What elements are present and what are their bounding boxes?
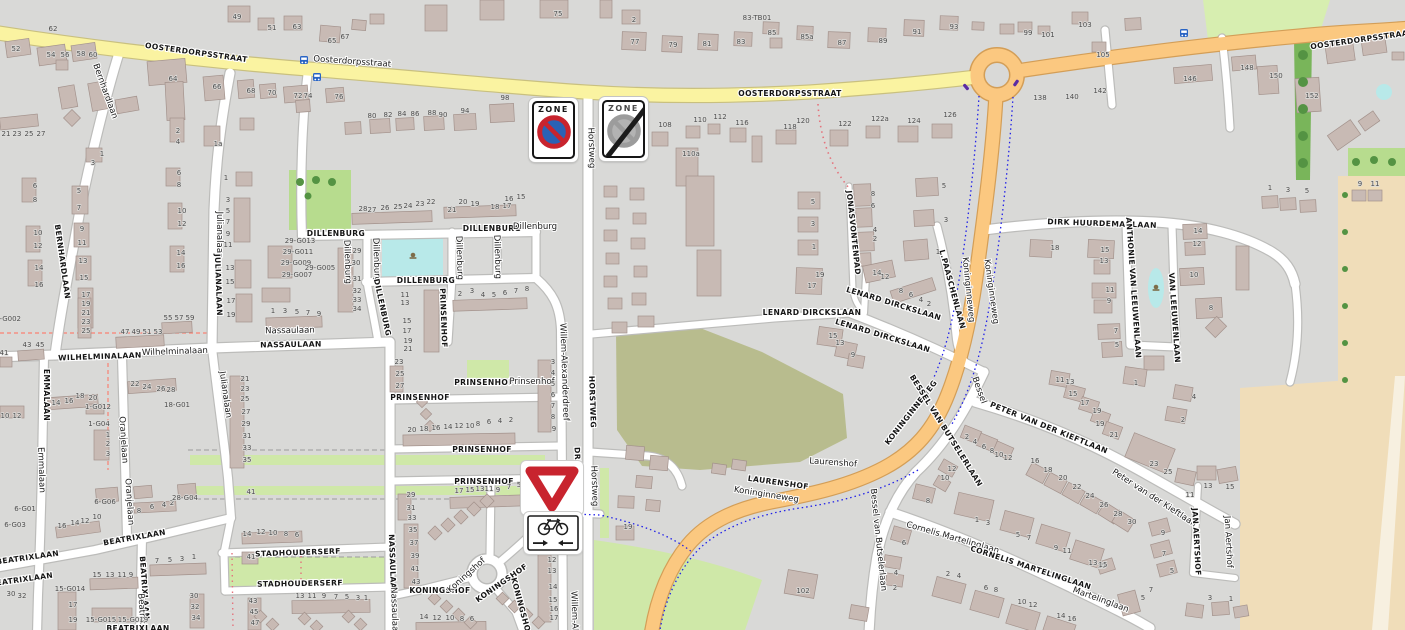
house-number: 3 — [551, 358, 555, 366]
house-number: 4 — [873, 226, 878, 234]
building — [708, 124, 720, 134]
house-number: 7 — [155, 557, 159, 565]
house-number: 9 — [496, 486, 500, 494]
house-number: 1 — [192, 553, 196, 561]
house-number: 19 — [82, 300, 91, 308]
house-number: 6 — [909, 291, 914, 299]
house-number: 89 — [879, 37, 888, 45]
house-number: 41 — [0, 349, 8, 357]
house-number: 5 — [1170, 567, 1174, 575]
house-number: 17 — [69, 601, 78, 609]
building — [1102, 341, 1123, 357]
house-number: 32 — [191, 603, 200, 611]
building — [631, 238, 645, 249]
house-number: 21 — [404, 345, 413, 353]
house-number: 31 — [353, 275, 362, 283]
house-number: 37 — [410, 539, 419, 547]
house-number: 13 — [401, 299, 410, 307]
house-number: 5 — [345, 593, 349, 601]
house-number: 55 — [164, 314, 173, 322]
house-number: 9 — [317, 310, 321, 318]
house-number: 85a — [800, 33, 813, 41]
house-number: 15 — [466, 486, 475, 494]
house-number: 30 — [352, 259, 361, 267]
house-number: 6 — [982, 443, 987, 451]
house-number: 74 — [304, 92, 313, 100]
building — [604, 230, 617, 241]
house-number: 15-G014 — [55, 585, 86, 593]
house-number: 23 — [241, 385, 250, 393]
house-number: 13 — [476, 485, 485, 493]
building — [686, 126, 700, 138]
house-number: 10 — [269, 529, 278, 537]
house-number: 6 — [150, 503, 155, 511]
house-number: 5 — [226, 207, 230, 215]
building — [649, 455, 668, 471]
building — [345, 122, 362, 135]
building — [240, 118, 254, 130]
house-number: 13 — [836, 339, 845, 347]
building — [606, 208, 619, 219]
zone-label: ZONE — [538, 105, 569, 114]
house-number: 27 — [242, 408, 251, 416]
house-number: 13 — [226, 264, 235, 272]
building — [646, 499, 661, 511]
house-number: 5 — [1305, 187, 1309, 195]
house-number: 31 — [243, 432, 252, 440]
building — [618, 496, 634, 509]
house-number: 32 — [18, 592, 27, 600]
house-number: 20 — [89, 394, 98, 402]
house-number: 1 — [812, 243, 816, 251]
building — [134, 485, 153, 499]
house-number: 29 — [407, 491, 416, 499]
house-number: 14 — [1057, 612, 1066, 620]
street-label: Dillenburg — [513, 222, 557, 232]
house-number: 25 — [1164, 468, 1173, 476]
building — [235, 260, 251, 288]
house-number: 1-G002 — [0, 315, 21, 323]
house-number: 8 — [177, 181, 181, 189]
house-number: 13 — [1100, 257, 1109, 265]
building — [932, 124, 952, 138]
house-number: 18-G01 — [164, 401, 190, 409]
building — [266, 618, 279, 630]
house-number: 58 — [77, 50, 86, 58]
house-number: 77 — [631, 38, 640, 46]
house-number: 28 — [1114, 510, 1123, 518]
house-number: 2 — [946, 570, 950, 578]
house-number: 13 — [296, 592, 305, 600]
house-number: 9 — [851, 351, 855, 359]
house-number: 9 — [226, 230, 230, 238]
house-number: 140 — [1065, 93, 1078, 101]
building — [830, 130, 848, 146]
house-number: 122 — [838, 120, 851, 128]
building — [1358, 111, 1380, 131]
house-number: 15 — [80, 274, 89, 282]
building — [538, 360, 551, 432]
house-number: 7 — [551, 402, 555, 410]
building — [420, 408, 431, 419]
house-number: 5 — [77, 187, 81, 195]
building — [1173, 385, 1193, 402]
house-number: 11 — [1106, 286, 1115, 294]
house-number: 116 — [735, 119, 749, 127]
house-number: 70 — [268, 89, 277, 97]
house-number: 6 — [33, 182, 38, 190]
building — [1000, 24, 1014, 34]
house-number: 29-G011 — [283, 248, 313, 256]
house-number: 148 — [1240, 64, 1253, 72]
tree-icon — [305, 193, 312, 200]
house-number: 14 — [243, 530, 252, 538]
house-number: 2 — [927, 300, 931, 308]
house-number: 33 — [353, 296, 362, 304]
house-number: 4 — [551, 369, 556, 377]
house-number: 7 — [1149, 586, 1153, 594]
building — [970, 590, 1004, 617]
house-number: 3 — [1286, 186, 1290, 194]
house-number: 75 — [554, 10, 563, 18]
building — [440, 600, 453, 613]
house-number: 76 — [335, 93, 344, 101]
house-number: 5 — [1016, 531, 1020, 539]
house-number: 24 — [1086, 492, 1095, 500]
roundabout — [977, 55, 1017, 95]
bus-icon — [1180, 29, 1188, 37]
building — [847, 354, 865, 369]
building — [454, 113, 477, 130]
house-number: 122a — [871, 115, 889, 123]
house-number: 7 — [334, 593, 338, 601]
building — [798, 192, 820, 209]
building — [162, 321, 193, 334]
building — [64, 110, 81, 127]
building — [932, 576, 966, 603]
house-number: 30 — [1128, 518, 1137, 526]
house-number: 12 — [81, 517, 90, 525]
bicycle-crossing-sign[interactable] — [524, 512, 582, 554]
house-number: 19 — [69, 616, 78, 624]
house-number: 11 — [1371, 180, 1380, 188]
house-number: 23 — [395, 358, 404, 366]
house-number: 12 — [1004, 454, 1013, 462]
house-number: 21 — [82, 309, 91, 317]
house-number: 4 — [498, 417, 503, 425]
house-number: 8 — [926, 497, 930, 505]
building — [634, 266, 647, 277]
house-number: 11 — [118, 571, 127, 579]
house-number: 11 — [401, 291, 410, 299]
house-number: 29 — [242, 420, 251, 428]
house-number: 15 — [1069, 390, 1078, 398]
building — [731, 459, 746, 471]
house-number: 52 — [12, 45, 21, 53]
house-number: 53 — [154, 328, 163, 336]
house-number: 47 — [251, 619, 260, 627]
house-number: 19 — [624, 523, 633, 531]
building — [638, 316, 654, 327]
building — [1157, 560, 1178, 577]
house-number: 7 — [77, 204, 81, 212]
house-number: 10 — [995, 451, 1004, 459]
building — [1217, 466, 1238, 483]
house-number: 1 — [1268, 184, 1272, 192]
house-number: 14 — [177, 249, 186, 257]
building — [632, 293, 646, 305]
house-number: 68 — [247, 87, 256, 95]
house-number: 4 — [1192, 393, 1197, 401]
building — [1185, 603, 1204, 618]
house-number: 11 — [1056, 376, 1065, 384]
house-number: 12 — [433, 614, 442, 622]
house-number: 2 — [106, 440, 110, 448]
house-number: 1 — [1229, 595, 1233, 603]
house-number: 19 — [471, 200, 480, 208]
house-number: 10 — [34, 229, 43, 237]
house-number: 54 — [47, 51, 56, 59]
parking-zone-sign[interactable]: ZONE — [529, 98, 578, 162]
building — [18, 349, 45, 361]
house-number: 9 — [1107, 297, 1111, 305]
building — [776, 130, 796, 144]
house-number: 23 — [13, 130, 22, 138]
house-number: 2 — [873, 235, 877, 243]
house-number: 3 — [811, 220, 815, 228]
house-number: 8 — [871, 190, 875, 198]
building — [630, 188, 644, 200]
house-number: 21 — [2, 130, 11, 138]
house-number: 32 — [353, 287, 362, 295]
building — [606, 253, 619, 264]
street-label: OOSTERDORPSSTRAAT — [738, 89, 842, 98]
house-number: 45 — [250, 608, 259, 616]
parking-zone-end-sign[interactable]: ZONE — [599, 97, 648, 161]
building — [770, 38, 782, 48]
house-number: 59 — [186, 314, 195, 322]
house-number: 110 — [693, 116, 706, 124]
building — [296, 100, 311, 113]
house-number: 51 — [268, 24, 277, 32]
house-number: 23 — [416, 200, 425, 208]
tree-icon — [1342, 229, 1348, 235]
house-number: 5 — [492, 291, 496, 299]
tree-icon — [1388, 158, 1396, 166]
house-number: 81 — [703, 40, 712, 48]
house-number: 3 — [986, 519, 990, 527]
building — [1352, 190, 1366, 201]
house-number: 25 — [25, 130, 34, 138]
house-number: 16 — [1068, 615, 1077, 623]
building — [0, 114, 39, 130]
street-label: DILLENBURG — [397, 276, 455, 285]
house-number: 10 — [446, 614, 455, 622]
house-number: 29 — [353, 247, 362, 255]
house-number: 15 — [1099, 561, 1108, 569]
house-number: 9 — [1358, 180, 1362, 188]
house-number: 23 — [82, 318, 91, 326]
house-number: 43 — [23, 341, 32, 349]
house-number: 1 — [224, 174, 228, 182]
building — [262, 288, 290, 302]
house-number: 14 — [35, 264, 44, 272]
house-number: 17 — [1081, 399, 1090, 407]
house-number: 7 — [514, 287, 518, 295]
house-number: 6 — [551, 391, 556, 399]
house-number: 57 — [175, 314, 184, 322]
grass-strip — [467, 360, 509, 378]
house-number: 110a — [682, 150, 700, 158]
house-number: 21 — [1110, 431, 1119, 439]
building — [1197, 466, 1216, 480]
house-number: 6 — [503, 289, 508, 297]
building — [1205, 316, 1226, 337]
house-number: 30 — [190, 592, 199, 600]
tree-icon — [1342, 377, 1348, 383]
street-label: Nassaulaan — [265, 326, 315, 337]
house-number: 16 — [505, 195, 514, 203]
building — [1144, 356, 1164, 370]
house-number: 1a — [214, 140, 223, 148]
house-number: 94 — [461, 107, 470, 115]
building — [1300, 200, 1317, 213]
house-number: 4 — [894, 569, 899, 577]
bus-icon — [313, 73, 321, 81]
house-number: 6-G03 — [4, 521, 26, 529]
farmland — [1338, 176, 1405, 388]
house-number: 3 — [91, 159, 95, 167]
building — [58, 592, 76, 630]
house-number: 10 — [466, 422, 475, 430]
parking-zone-plate: ZONE — [532, 101, 575, 159]
house-number: 47 — [121, 328, 130, 336]
house-number: 10 — [93, 513, 102, 521]
house-number: 82 — [384, 111, 393, 119]
grass-strip — [600, 468, 609, 538]
house-number: 12 — [257, 528, 266, 536]
building — [711, 463, 726, 475]
house-number: 17 — [503, 202, 512, 210]
house-number: 16 — [65, 397, 74, 405]
house-number: 33 — [243, 444, 252, 452]
house-number: 6-G06 — [94, 498, 116, 506]
building — [854, 184, 872, 207]
house-number: 27 — [368, 206, 377, 214]
house-number: 86 — [411, 110, 420, 118]
building — [234, 198, 250, 242]
tree-icon — [1352, 158, 1360, 166]
yield-sign[interactable] — [521, 461, 583, 515]
house-number: 18 — [1044, 466, 1053, 474]
house-number: 16 — [550, 605, 559, 613]
map[interactable]: OOSTERDORPSSTRAATOosterdorpsstraatOOSTER… — [0, 0, 1405, 630]
building — [490, 103, 515, 122]
street-label: BEATRIXLAAN — [0, 571, 54, 589]
house-number: 1 — [271, 307, 275, 315]
house-number: 2 — [509, 416, 513, 424]
building — [866, 126, 880, 138]
street-label: Willem-Alexanderdreef — [568, 591, 581, 630]
house-number: 41 — [247, 553, 256, 561]
house-number: 98 — [501, 94, 510, 102]
house-number: 10 — [1018, 598, 1027, 606]
house-number: 12 — [455, 422, 464, 430]
street-label: Julianalaan — [214, 210, 224, 258]
building — [633, 213, 646, 224]
building — [370, 14, 384, 24]
building — [972, 22, 984, 30]
house-number: 31 — [407, 504, 416, 512]
house-number: 8 — [994, 586, 998, 594]
house-number: 13 — [1089, 559, 1098, 567]
house-number: 67 — [341, 33, 350, 41]
house-number: 2 — [893, 584, 897, 592]
house-number: 2 — [965, 433, 969, 441]
house-number: 10 — [941, 474, 950, 482]
house-number: 28 — [167, 386, 176, 394]
building — [0, 357, 12, 367]
house-number: 8 — [525, 285, 529, 293]
house-number: 99 — [1024, 29, 1033, 37]
street-label: Dillenburg — [453, 236, 465, 281]
house-number: 14 — [71, 519, 80, 527]
house-number: 102 — [796, 587, 809, 595]
tree-icon — [1342, 303, 1348, 309]
building — [58, 85, 78, 109]
house-number: 1 — [364, 594, 368, 602]
house-number: 4 — [162, 501, 167, 509]
house-number: 10 — [1, 412, 10, 420]
house-number: 18 — [491, 203, 500, 211]
house-number: 120 — [796, 117, 809, 125]
street-label: DILLENBURG — [307, 229, 365, 238]
bus-icon — [300, 56, 308, 64]
tree-icon — [296, 178, 304, 186]
building — [1175, 468, 1196, 486]
house-number: 152 — [1305, 92, 1318, 100]
house-number: 39 — [411, 552, 420, 560]
street-label: Koninginneweg — [981, 259, 1000, 325]
house-number: 9 — [80, 225, 84, 233]
house-number: 88 — [428, 109, 437, 117]
house-number: 3 — [470, 287, 474, 295]
house-number: 80 — [368, 112, 377, 120]
street-label: PRINSENHOF — [438, 288, 449, 348]
house-number: 30 — [7, 590, 16, 598]
building — [636, 475, 653, 488]
house-number: 87 — [838, 39, 847, 47]
house-number: 14 — [444, 423, 453, 431]
building — [425, 5, 447, 31]
house-number: 6 — [984, 584, 989, 592]
house-number: 1 — [100, 150, 104, 158]
building — [612, 322, 627, 333]
house-number: 6 — [295, 531, 300, 539]
building — [352, 19, 367, 30]
building — [354, 618, 367, 630]
street-label: Oranjelaan — [116, 416, 129, 464]
house-number: 11 — [1186, 491, 1195, 499]
building — [916, 177, 939, 196]
building — [856, 208, 873, 228]
building — [236, 172, 252, 186]
tree-icon — [328, 178, 336, 186]
house-number: 27 — [37, 130, 46, 138]
building — [903, 239, 929, 261]
street-label: HORSTWEG — [587, 376, 598, 429]
house-number: 5 — [1141, 594, 1145, 602]
